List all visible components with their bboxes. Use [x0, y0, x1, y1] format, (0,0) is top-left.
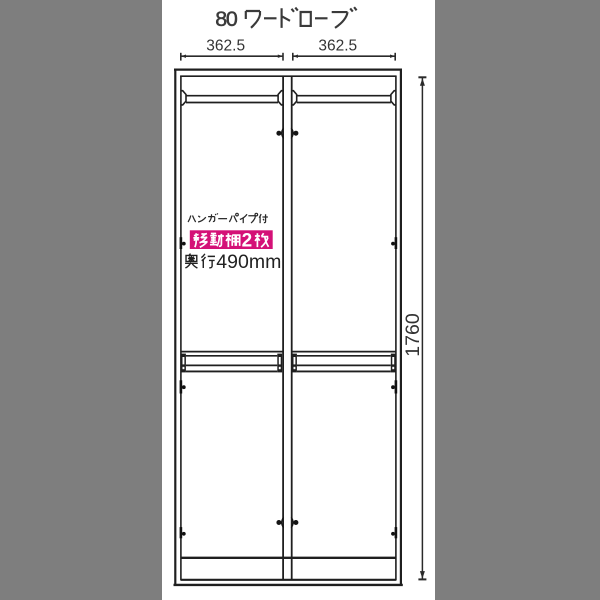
- svg-text:1760: 1760: [402, 313, 424, 357]
- svg-text:490mm: 490mm: [216, 251, 281, 273]
- svg-text:362.5: 362.5: [206, 37, 245, 54]
- svg-text:80: 80: [215, 7, 238, 31]
- svg-text:362.5: 362.5: [318, 37, 357, 54]
- svg-text:2: 2: [242, 231, 253, 252]
